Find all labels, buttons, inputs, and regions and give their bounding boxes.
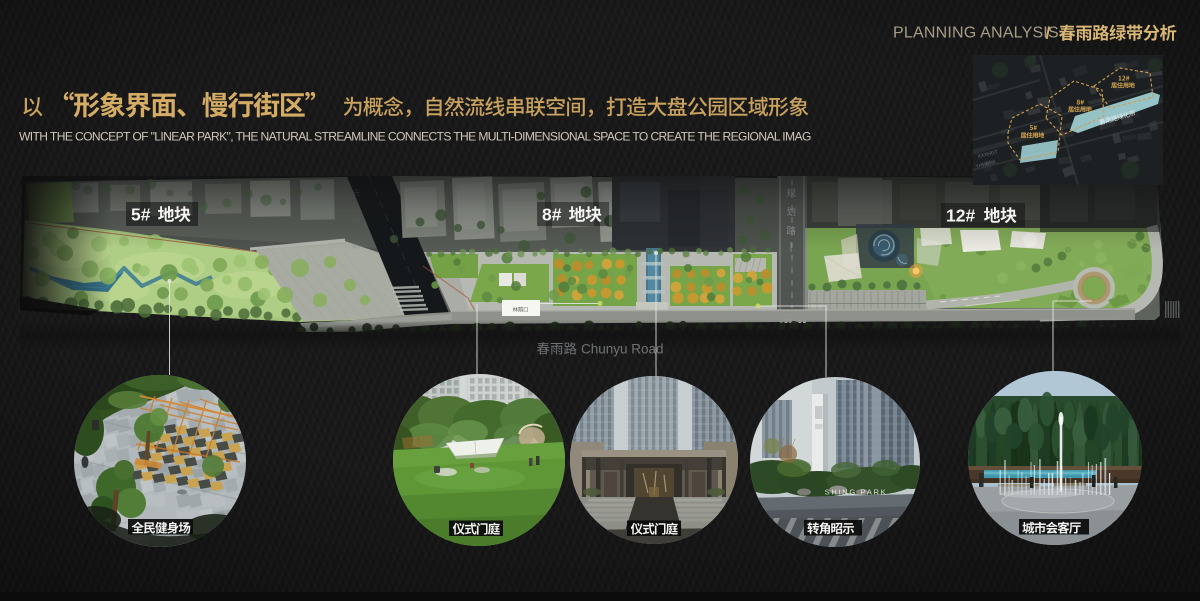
svg-text:8#: 8# (542, 205, 562, 225)
svg-text:5#: 5# (131, 205, 151, 225)
svg-text:12#: 12# (946, 206, 975, 226)
svg-text:WITH THE CONCEPT OF "LINEAR PA: WITH THE CONCEPT OF "LINEAR PARK", THE N… (19, 130, 811, 144)
svg-text:PLANNING ANALYSIS: PLANNING ANALYSIS (893, 25, 1059, 42)
svg-text:/: / (1046, 24, 1051, 43)
svg-text:Chunyu Road: Chunyu Road (581, 342, 664, 357)
